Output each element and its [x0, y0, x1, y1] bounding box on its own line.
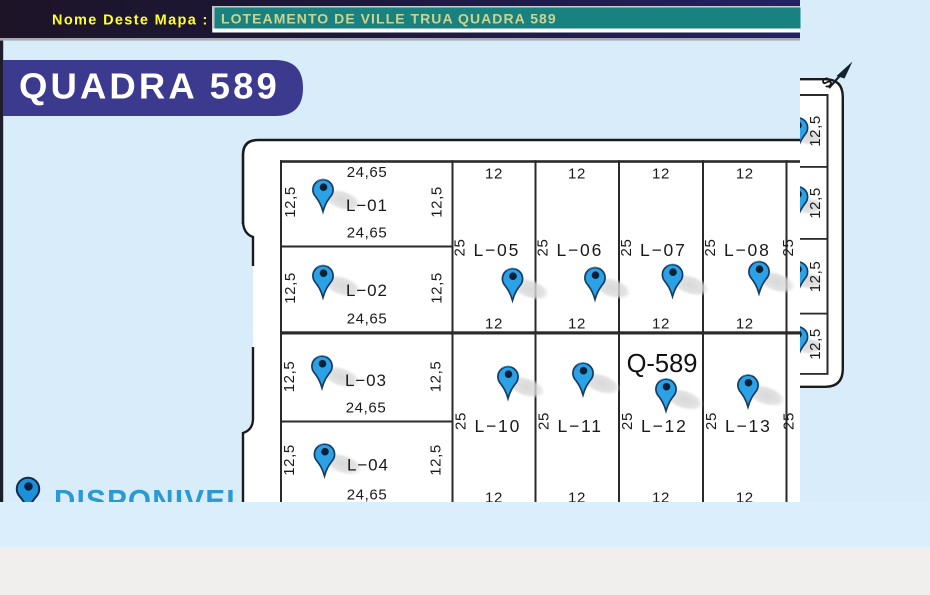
- svg-text:12: 12: [652, 166, 670, 183]
- svg-text:12,5: 12,5: [807, 328, 824, 360]
- svg-text:L−03: L−03: [345, 371, 387, 390]
- svg-text:12,5: 12,5: [807, 187, 824, 219]
- svg-text:24,65: 24,65: [347, 225, 388, 242]
- svg-text:25: 25: [781, 412, 798, 430]
- svg-text:12: 12: [736, 166, 754, 183]
- svg-text:25: 25: [452, 239, 469, 257]
- svg-text:25: 25: [618, 239, 635, 257]
- svg-text:12,5: 12,5: [281, 361, 298, 393]
- svg-text:12: 12: [568, 166, 586, 183]
- svg-text:L−10: L−10: [475, 416, 522, 436]
- svg-text:25: 25: [619, 412, 636, 430]
- svg-text:12,5: 12,5: [282, 272, 299, 304]
- svg-text:L−13: L−13: [725, 416, 772, 436]
- svg-text:L−08: L−08: [724, 240, 771, 260]
- svg-text:12,5: 12,5: [428, 361, 445, 393]
- svg-text:Q-589: Q-589: [627, 350, 698, 378]
- svg-text:L−11: L−11: [558, 416, 603, 436]
- svg-text:25: 25: [536, 412, 553, 430]
- svg-text:12,5: 12,5: [428, 444, 445, 476]
- svg-text:12: 12: [485, 316, 503, 333]
- svg-text:L−12: L−12: [641, 416, 688, 436]
- svg-text:12,5: 12,5: [429, 272, 446, 304]
- svg-text:L−01: L−01: [346, 196, 388, 215]
- svg-text:24,65: 24,65: [347, 311, 388, 328]
- svg-text:24,65: 24,65: [347, 164, 388, 181]
- svg-text:25: 25: [535, 239, 552, 257]
- svg-text:Nome Deste Mapa :: Nome Deste Mapa :: [52, 13, 209, 29]
- svg-text:12: 12: [736, 316, 754, 333]
- svg-text:L−02: L−02: [346, 281, 388, 300]
- svg-text:L−07: L−07: [640, 240, 687, 260]
- svg-text:12,5: 12,5: [429, 186, 446, 218]
- svg-text:L−06: L−06: [557, 240, 604, 260]
- svg-text:12: 12: [485, 166, 503, 183]
- svg-text:25: 25: [702, 239, 719, 257]
- svg-text:25: 25: [453, 412, 470, 430]
- svg-text:24,65: 24,65: [346, 400, 387, 417]
- svg-text:12,5: 12,5: [281, 444, 298, 476]
- svg-text:25: 25: [780, 239, 797, 257]
- svg-text:12,5: 12,5: [807, 261, 824, 293]
- svg-text:L−05: L−05: [474, 240, 521, 260]
- svg-text:QUADRA 589: QUADRA 589: [19, 66, 280, 107]
- svg-text:12,5: 12,5: [807, 115, 824, 147]
- svg-text:L−04: L−04: [347, 456, 389, 475]
- svg-text:LOTEAMENTO DE VILLE TRUA QUADR: LOTEAMENTO DE VILLE TRUA QUADRA 589: [221, 11, 557, 27]
- svg-text:12,5: 12,5: [282, 186, 299, 218]
- svg-text:12: 12: [652, 316, 670, 333]
- svg-text:24,65: 24,65: [347, 487, 388, 504]
- svg-text:25: 25: [703, 412, 720, 430]
- svg-text:12: 12: [568, 316, 586, 333]
